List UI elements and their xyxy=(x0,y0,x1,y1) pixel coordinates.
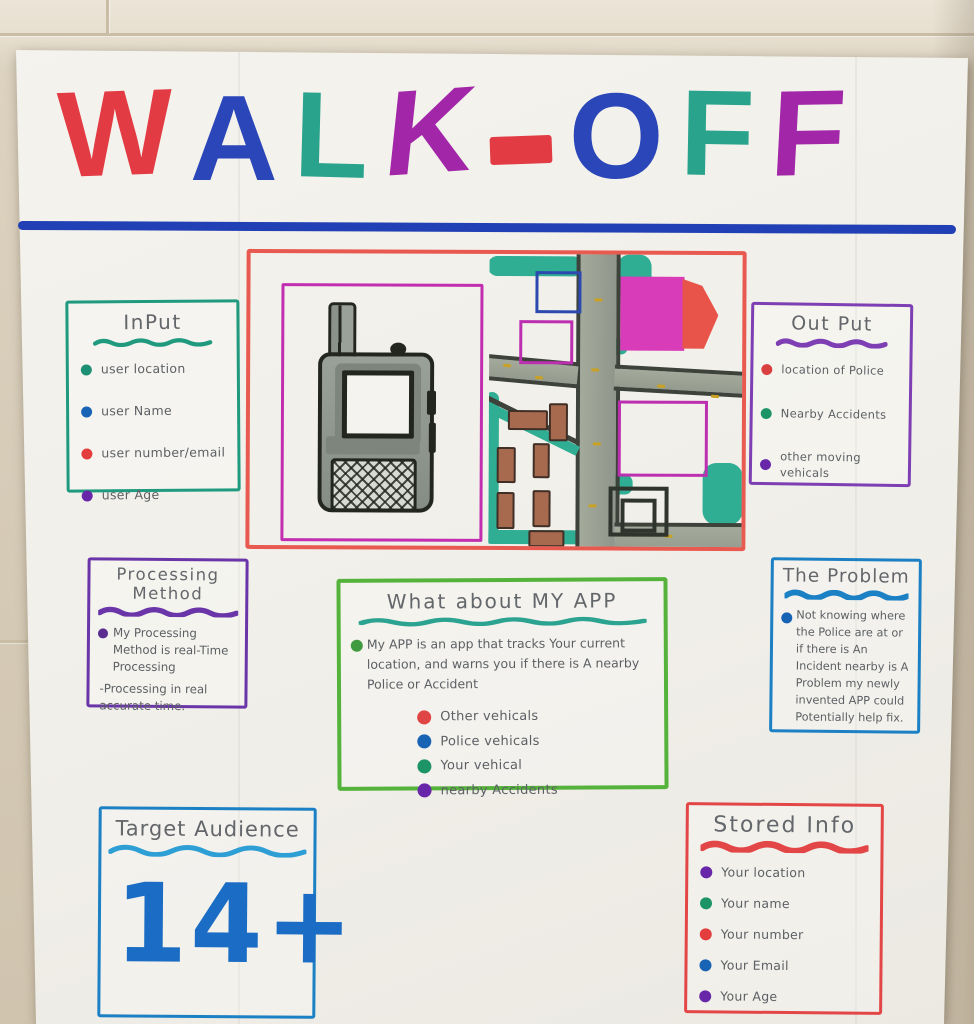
poster-title: W A L K O F F xyxy=(58,72,846,212)
item-label: user Age xyxy=(102,487,160,504)
lane-marking xyxy=(593,442,601,445)
problem-text: Not knowing where the Police are at or i… xyxy=(795,608,908,724)
item-label: user number/email xyxy=(101,444,225,462)
wavy-underline xyxy=(98,606,238,617)
about-paragraph: My APP is an app that tracks Your curren… xyxy=(353,633,650,695)
building-outline-magenta xyxy=(618,401,708,477)
about-paragraph-text: My APP is an app that tracks Your curren… xyxy=(367,635,639,691)
legend-label: nearby Accidents xyxy=(441,781,558,799)
legend-dot xyxy=(417,710,431,724)
problem-paragraph: Not knowing where the Police are at or i… xyxy=(780,607,912,727)
title-letter: O xyxy=(569,75,664,197)
item-label: location of Police xyxy=(781,362,884,379)
list-item: other moving vehicals xyxy=(760,449,906,482)
bullet-dot xyxy=(760,459,771,470)
item-label: Your number xyxy=(721,926,804,944)
processing-bullet-text: My Processing Method is real-Time Proces… xyxy=(113,625,229,674)
building-outline-blue xyxy=(535,271,581,313)
bullet-dot xyxy=(700,867,712,879)
legend-label: Other vehicals xyxy=(440,708,538,726)
input-list: user location user Name user number/emai… xyxy=(81,360,234,504)
target-age-value: 14+ xyxy=(114,861,313,988)
walkie-talkie-side-button xyxy=(427,391,436,415)
bullet-dot xyxy=(781,612,792,623)
stored-title: Stored Info xyxy=(689,812,881,839)
bullet-dot xyxy=(81,364,92,375)
wavy-underline xyxy=(784,589,908,600)
processing-bullet: My Processing Method is real-Time Proces… xyxy=(100,624,237,676)
output-list: location of Police Nearby Accidents othe… xyxy=(760,362,908,482)
title-letter: A xyxy=(190,77,278,199)
item-label: Your Email xyxy=(720,957,788,974)
car-marker xyxy=(496,492,514,529)
legend-label: Police vehicals xyxy=(440,732,539,750)
street-map-drawing xyxy=(488,254,742,547)
wavy-underline xyxy=(108,843,306,857)
wavy-underline xyxy=(93,337,213,348)
target-audience-box: Target Audience 14+ xyxy=(97,806,316,1019)
walkie-talkie-frame xyxy=(280,283,483,542)
building-pink xyxy=(620,277,684,351)
car-marker xyxy=(528,530,564,547)
input-title: InPut xyxy=(68,309,236,334)
list-item: Your name xyxy=(700,895,878,913)
output-box: Out Put location of Police Nearby Accide… xyxy=(749,302,914,487)
title-hyphen xyxy=(490,135,553,165)
legend-item: Police vehicals xyxy=(417,732,664,751)
problem-box: The Problem Not knowing where the Police… xyxy=(769,557,922,734)
processing-title: Processing Method xyxy=(108,565,228,604)
road-horizontal-right xyxy=(614,365,743,398)
title-letter: F xyxy=(768,71,849,194)
poster-content: W A L K O F F xyxy=(0,0,974,1024)
about-title: What about MY APP xyxy=(341,588,664,614)
legend-label: Your vehical xyxy=(440,757,522,775)
item-label: other moving vehicals xyxy=(780,449,906,482)
building-outline-magenta xyxy=(519,320,573,364)
wavy-underline xyxy=(358,615,646,627)
output-title: Out Put xyxy=(754,312,910,336)
poster-photo-scene: W A L K O F F xyxy=(0,0,974,1024)
about-app-box: What about MY APP My APP is an app that … xyxy=(336,577,668,791)
bullet-dot xyxy=(700,898,712,910)
title-underline-rule xyxy=(18,221,956,234)
bullet-dot xyxy=(699,959,711,971)
stored-info-box: Stored Info Your location Your name Your… xyxy=(684,802,884,1015)
legend-item: nearby Accidents xyxy=(418,781,665,800)
drawing-panel xyxy=(245,249,746,551)
bullet-dot xyxy=(82,490,93,501)
input-box: InPut user location user Name user numbe… xyxy=(65,299,240,492)
bullet-dot xyxy=(81,406,92,417)
item-label: Your name xyxy=(721,895,790,912)
processing-method-box: Processing Method My Processing Method i… xyxy=(86,557,248,708)
tree-bush xyxy=(702,463,742,525)
car-marker xyxy=(549,403,568,441)
lane-marking xyxy=(503,364,511,368)
title-letter: W xyxy=(56,70,175,196)
list-item: location of Police xyxy=(761,362,907,380)
car-marker xyxy=(508,410,548,430)
wavy-underline xyxy=(776,337,888,349)
bullet-dot xyxy=(81,448,92,459)
bullet-dot xyxy=(761,408,772,419)
building-red-tip xyxy=(682,279,718,349)
walkie-talkie-side-button xyxy=(429,423,436,453)
bullet-dot xyxy=(700,928,712,940)
bullet-dot xyxy=(98,628,108,638)
car-marker xyxy=(532,490,550,527)
target-title: Target Audience xyxy=(102,816,314,841)
dark-structure-inner xyxy=(620,499,656,533)
lane-marking xyxy=(711,395,719,398)
walkie-talkie-band xyxy=(326,436,420,454)
list-item: user Age xyxy=(82,486,234,504)
car-marker xyxy=(533,443,550,478)
item-label: Your Age xyxy=(720,988,777,1005)
lane-marking xyxy=(594,298,602,301)
item-label: user Name xyxy=(101,403,172,420)
walkie-talkie-screen xyxy=(342,370,414,438)
car-marker xyxy=(497,447,516,483)
title-letter: K xyxy=(379,67,481,195)
walkie-talkie-speaker xyxy=(331,458,417,511)
legend-item: Other vehicals xyxy=(417,707,664,726)
lane-marking xyxy=(657,384,665,387)
lane-marking xyxy=(589,504,597,507)
item-label: user location xyxy=(101,361,186,378)
title-letter: L xyxy=(293,73,371,197)
bullet-dot xyxy=(699,990,711,1002)
lane-marking xyxy=(535,376,543,380)
list-item: Nearby Accidents xyxy=(761,406,907,424)
list-item: Your number xyxy=(700,926,878,944)
problem-title: The Problem xyxy=(774,565,919,588)
list-item: user number/email xyxy=(81,444,233,462)
list-item: Your Email xyxy=(699,957,877,975)
bullet-dot xyxy=(351,640,363,652)
list-item: Your Age xyxy=(699,988,877,1006)
item-label: Nearby Accidents xyxy=(781,406,887,423)
bullet-dot xyxy=(761,364,772,375)
wavy-underline xyxy=(700,840,868,853)
list-item: user Name xyxy=(81,402,233,420)
legend-dot xyxy=(418,784,432,798)
legend-dot xyxy=(417,735,431,749)
title-letter: F xyxy=(679,71,756,194)
item-label: Your location xyxy=(721,864,805,882)
map-legend: Other vehicals Police vehicals Your vehi… xyxy=(417,707,664,799)
list-item: Your location xyxy=(700,864,878,882)
lane-marking xyxy=(591,368,599,371)
legend-dot xyxy=(417,759,431,773)
processing-note: -Processing in real accurate time. xyxy=(99,681,236,715)
list-item: user location xyxy=(81,360,233,378)
stored-list: Your location Your name Your number Your… xyxy=(699,864,878,1006)
legend-item: Your vehical xyxy=(417,756,664,775)
